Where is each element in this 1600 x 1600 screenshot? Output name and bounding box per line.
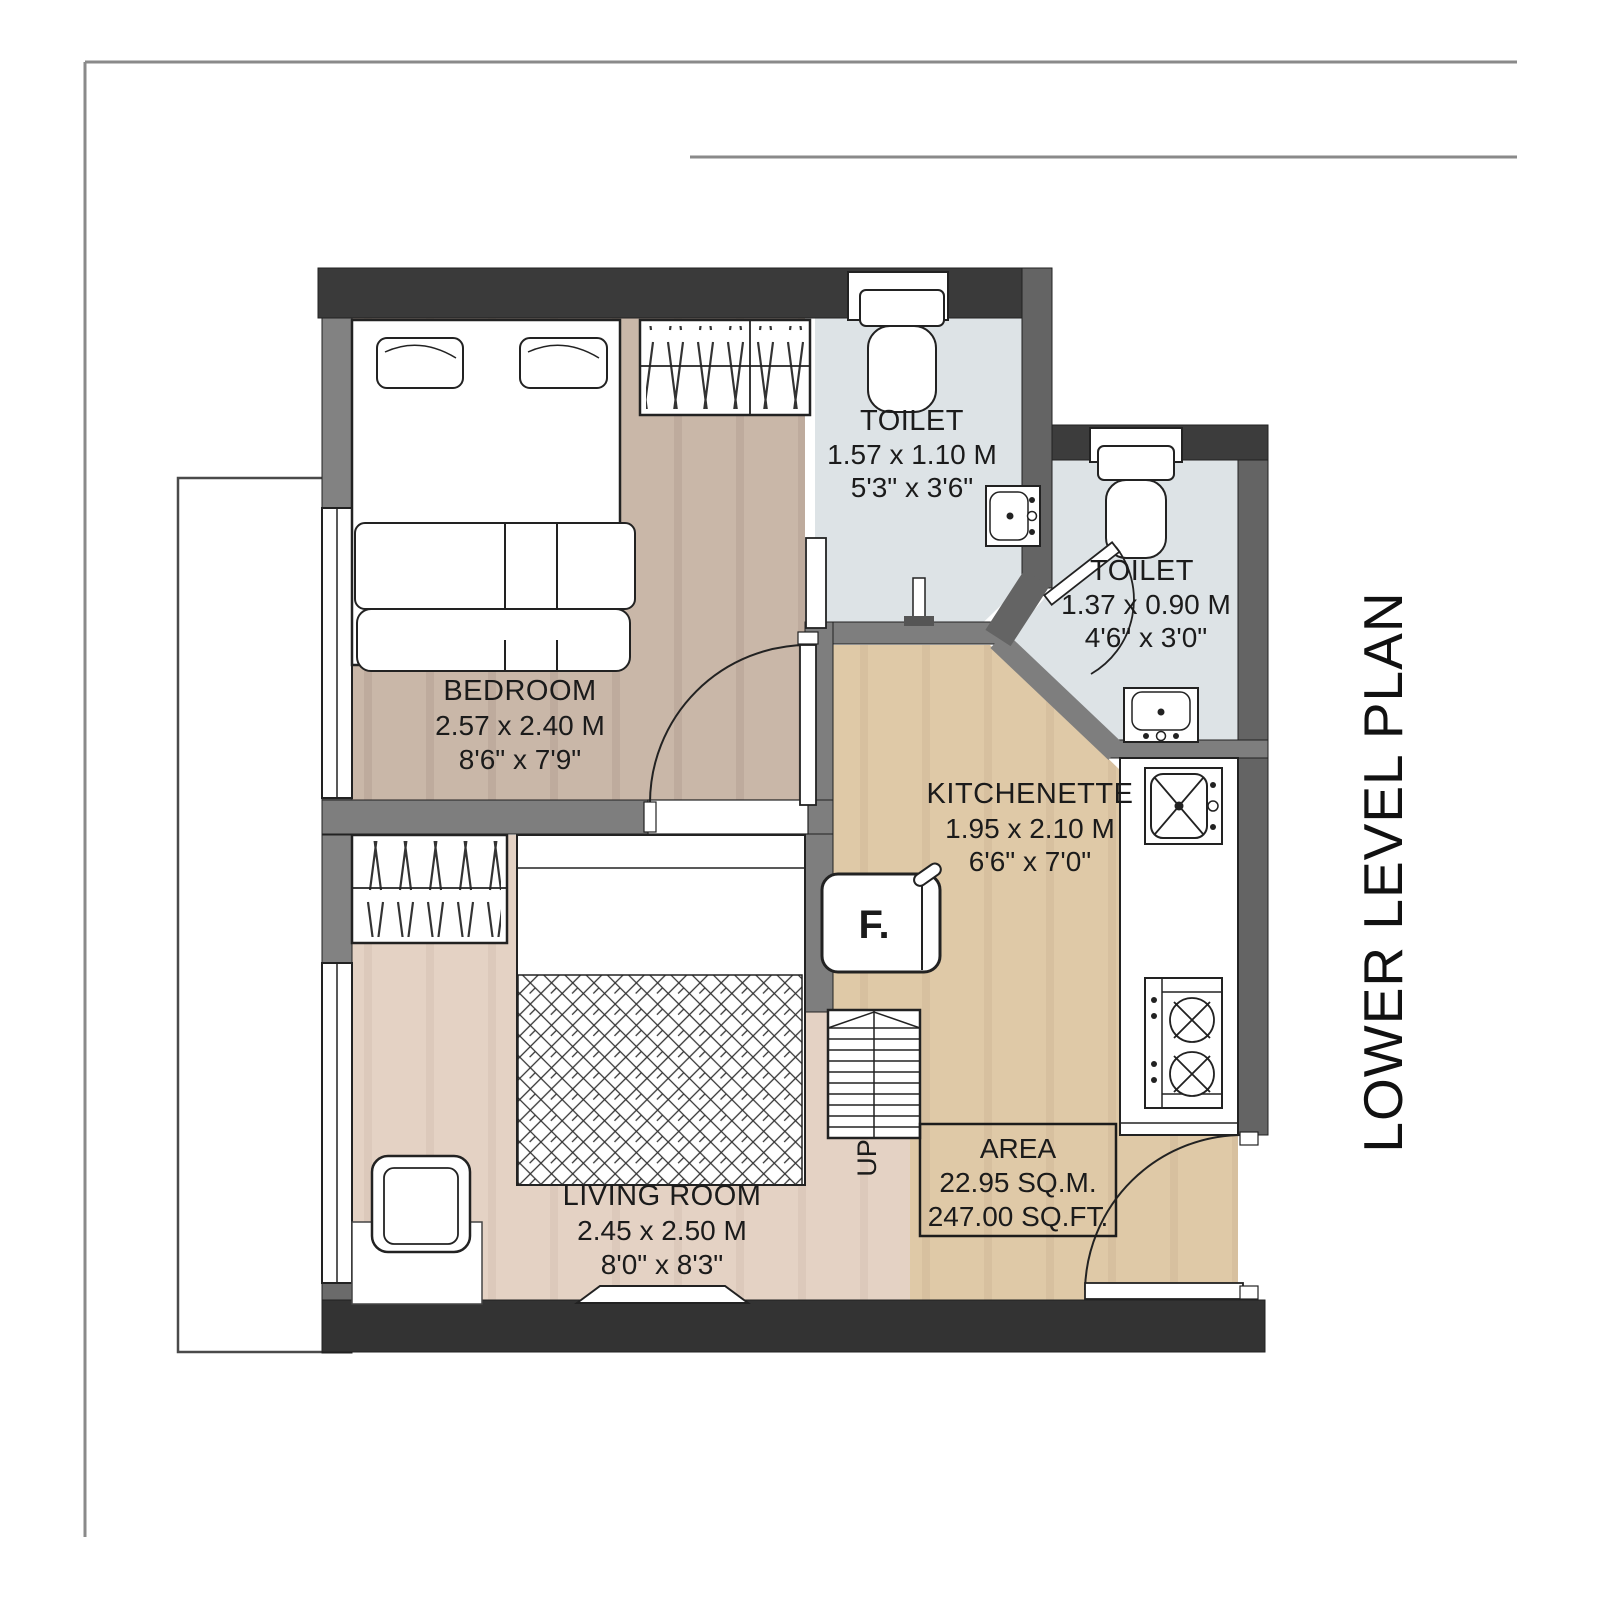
kitchen-counter <box>1120 758 1238 1135</box>
area-label: AREA <box>980 1133 1057 1164</box>
kitchen-sink <box>1145 768 1222 844</box>
bedroom-door-leaf <box>800 645 816 805</box>
toilet-2-dim-ft: 4'6" x 3'0" <box>1085 622 1207 653</box>
entrance-door-leaf <box>1085 1283 1243 1299</box>
bedroom-wardrobe <box>640 320 810 415</box>
bedroom-dim-ft: 8'6" x 7'9" <box>459 744 581 775</box>
toilet-1-dim-ft: 5'3" x 3'6" <box>851 472 973 503</box>
kitchenette-label: KITCHENETTE <box>927 778 1134 810</box>
area-sqm: 22.95 SQ.M. <box>939 1167 1096 1198</box>
bedroom-door-opening <box>648 800 808 834</box>
floor-plan-sheet: F. UP <box>0 0 1600 1600</box>
bed-blanket <box>355 523 635 609</box>
balcony-outline <box>178 478 322 1352</box>
toilet-tank <box>860 290 944 326</box>
bedroom-label: BEDROOM <box>443 675 596 707</box>
toilet-bowl <box>868 326 936 412</box>
floor-plan-drawing: F. UP <box>0 0 1600 1600</box>
living-wardrobe <box>352 835 507 943</box>
stairs <box>828 1010 920 1138</box>
toilet-2-label: TOILET <box>1090 555 1194 587</box>
sofa-bed <box>517 835 805 1185</box>
area-sqft: 247.00 SQ.FT. <box>928 1201 1109 1232</box>
bed-footer <box>357 609 630 671</box>
toilet-1-sink <box>986 486 1040 546</box>
bedroom-dim-m: 2.57 x 2.40 M <box>435 710 605 741</box>
fridge: F. <box>822 861 943 972</box>
fridge-label: F. <box>858 903 889 947</box>
toilet-tank <box>1098 446 1174 480</box>
toilet-2-dim-m: 1.37 x 0.90 M <box>1061 589 1231 620</box>
tv-console <box>577 1286 748 1303</box>
living-room-dim-ft: 8'0" x 8'3" <box>601 1249 723 1280</box>
toilet-1-door-leaf <box>806 538 826 628</box>
page-title: LOWER LEVEL PLAN <box>1352 591 1414 1152</box>
double-bed <box>352 320 635 671</box>
stairs-up-label: UP <box>852 1139 882 1177</box>
kitchenette-dim-m: 1.95 x 2.10 M <box>945 813 1115 844</box>
armchair <box>372 1156 470 1252</box>
living-room-dim-m: 2.45 x 2.50 M <box>577 1215 747 1246</box>
living-room-label: LIVING ROOM <box>563 1180 762 1212</box>
toilet-1-label: TOILET <box>860 405 964 437</box>
kitchenette-dim-ft: 6'6" x 7'0" <box>969 846 1091 877</box>
toilet-1-dim-m: 1.57 x 1.10 M <box>827 439 997 470</box>
rug <box>518 975 802 1185</box>
toilet-2-sink <box>1124 688 1198 742</box>
kitchenette-floor-entry <box>1120 1135 1238 1300</box>
stove <box>1145 978 1222 1108</box>
entrance-opening <box>1240 1148 1268 1285</box>
